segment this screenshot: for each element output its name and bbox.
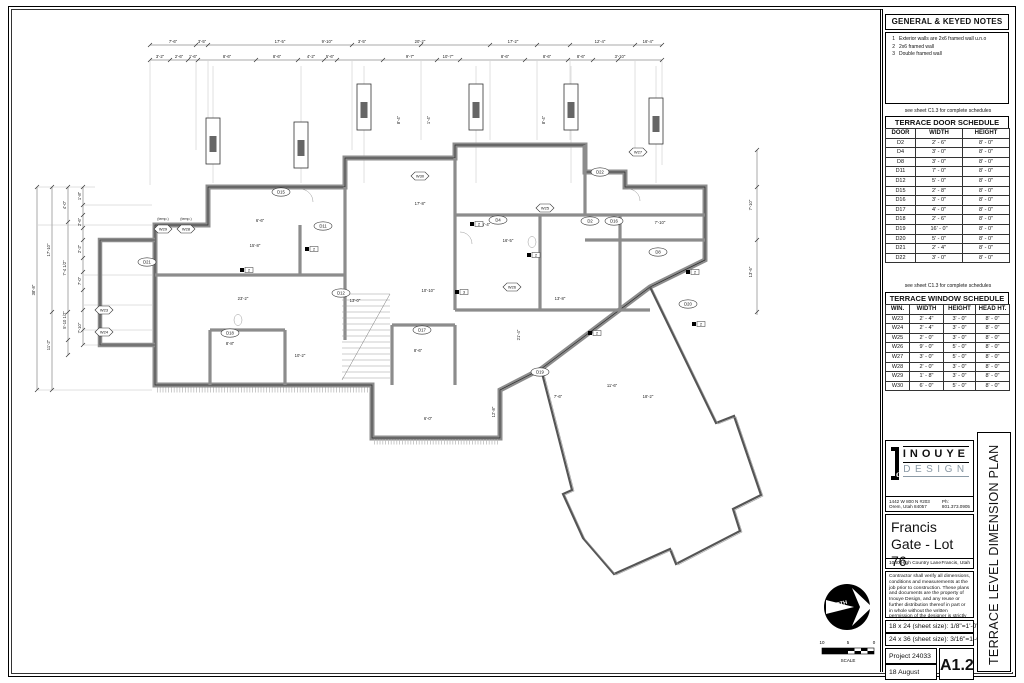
- dimension-label: 11'-6": [607, 383, 618, 388]
- dimension-label: 1'-6": [189, 54, 198, 59]
- door-schedule: TERRACE DOOR SCHEDULE DOOR WIDTH HEIGHT …: [885, 116, 1009, 263]
- table-row: D152' - 8"8' - 0": [886, 186, 1010, 196]
- dimension-label: 5'-6": [326, 54, 335, 59]
- keyed-marker: [692, 322, 696, 326]
- note-item: 3Double framed wall: [889, 51, 1006, 59]
- dimension-label: 21'-4": [516, 329, 521, 340]
- dimension-label: 8'-6": [223, 54, 232, 59]
- door-swings: [234, 189, 640, 326]
- svg-text:d: d: [896, 469, 899, 479]
- dimension-label: 2'-2": [77, 244, 82, 253]
- svg-text:D22: D22: [596, 170, 604, 175]
- svg-text:SCALE: SCALE: [841, 658, 856, 663]
- window-schedule: TERRACE WINDOW SCHEDULE WIN. WIDTH HEIGH…: [885, 292, 1009, 391]
- toilet-fixture: [234, 315, 242, 326]
- general-notes-body: 1Exterior walls are 2x6 framed wall u.n.…: [885, 32, 1009, 104]
- disclaimer-box: Contractor shall verify all dimensions, …: [885, 571, 974, 618]
- dimension-label: 17'-10": [46, 243, 51, 257]
- project-street: 1040 High Country Lane: [889, 561, 941, 566]
- table-row: W242' - 4"3' - 0"8' - 0": [886, 324, 1010, 334]
- svg-text:W24: W24: [100, 330, 109, 335]
- schedule-note-2: see sheet C1.3 for complete schedules: [883, 283, 1013, 289]
- table-row: D174' - 0"8' - 0": [886, 205, 1010, 215]
- table-row: D22' - 6"8' - 0": [886, 138, 1010, 148]
- table-row: D125' - 0"8' - 0": [886, 176, 1010, 186]
- svg-text:5: 5: [847, 640, 850, 645]
- svg-text:D12: D12: [337, 291, 345, 296]
- firm-address: 1442 W 800 N #203 Orem, Utah 84057: [889, 499, 942, 509]
- table-row: D43' - 0"8' - 0": [886, 148, 1010, 158]
- dimension-label: 4'-0": [62, 200, 67, 209]
- svg-text:D16: D16: [610, 219, 618, 224]
- dimension-label: 3'-5": [198, 39, 207, 44]
- dimension-label: 17'-5": [275, 39, 286, 44]
- dimension-label: 8'-6": [273, 54, 282, 59]
- sheet-size-small: 18 x 24 (sheet size): 1/8"=1'-0": [885, 620, 974, 633]
- svg-text:W29: W29: [159, 227, 168, 232]
- note-item: 1Exterior walls are 2x6 framed wall u.n.…: [889, 36, 1006, 44]
- table-row: D182' - 6"8' - 0": [886, 215, 1010, 225]
- dimension-label: 13'-8": [555, 296, 566, 301]
- sheet-title-vertical: TERRACE LEVEL DIMENSION PLAN: [977, 432, 1011, 672]
- dimension-label: 13'-0": [350, 298, 361, 303]
- firm-logo-box: d INOUYE DESIGN 1442 W 800 N #203 Orem, …: [885, 440, 974, 512]
- table-row: D163' - 0"8' - 0": [886, 196, 1010, 206]
- dimension-label: 10'-7": [443, 54, 454, 59]
- dimension-label: 15'-8": [250, 243, 261, 248]
- dimension-label: 7'-6": [169, 39, 178, 44]
- dimension-label: 10'-10": [422, 288, 436, 293]
- svg-text:D4: D4: [495, 218, 501, 223]
- svg-text:D11: D11: [319, 224, 327, 229]
- dimension-label: 17'-8": [415, 201, 426, 206]
- svg-text:D15: D15: [277, 190, 285, 195]
- svg-text:W26: W26: [508, 285, 517, 290]
- title-block: GENERAL & KEYED NOTES 1Exterior walls ar…: [882, 9, 1013, 672]
- dimension-ticks: [35, 43, 759, 392]
- dimension-label: 12'-4": [595, 39, 606, 44]
- dimension-label: 18'-2": [643, 394, 654, 399]
- dimension-label: 8'-4": [396, 115, 401, 124]
- north-arrow: NORTH: [824, 584, 872, 630]
- dimension-label: 6'-6": [256, 218, 265, 223]
- table-row: W232' - 4"3' - 0"8' - 0": [886, 314, 1010, 324]
- dimension-lines: [37, 45, 757, 390]
- firm-name-2: DESIGN: [903, 463, 969, 477]
- dimension-label: 23'-2": [238, 296, 249, 301]
- project-city: Francis, Utah: [941, 561, 970, 566]
- svg-text:D20: D20: [684, 302, 692, 307]
- dimension-label: (temp.): [157, 217, 168, 221]
- keyed-marker: [305, 247, 309, 251]
- dimension-label: 3'-5": [358, 39, 367, 44]
- drawing-sheet: { "title_block": { "notes": { "title": "…: [0, 0, 1024, 683]
- table-row: W306' - 0"5' - 0"8' - 0": [886, 381, 1010, 391]
- dimension-label: 5'-10 1/2": [62, 311, 67, 329]
- dimension-label: 4'-2": [307, 54, 316, 59]
- table-row: D212' - 4"8' - 0": [886, 244, 1010, 254]
- toilet-fixture: [528, 237, 536, 248]
- general-notes-list: 1Exterior walls are 2x6 framed wall u.n.…: [886, 33, 1008, 59]
- table-row: D83' - 0"8' - 0": [886, 157, 1010, 167]
- scale-bar: 10 5 0 SCALE: [819, 640, 875, 663]
- svg-text:W27: W27: [634, 150, 643, 155]
- sheet-number: A1.2: [939, 648, 974, 680]
- floor-plan-drawing: 7'-6"3'-5"17'-5"9'-10"3'-5"20'-2"17'-2"1…: [0, 0, 880, 683]
- general-notes-header: GENERAL & KEYED NOTES: [885, 14, 1009, 30]
- svg-text:D19: D19: [536, 370, 544, 375]
- dimension-label: 8'-4": [541, 115, 546, 124]
- door-schedule-table: DOOR WIDTH HEIGHT D22' - 6"8' - 0"D43' -…: [885, 128, 1010, 263]
- table-row: W273' - 0"5' - 0"8' - 0": [886, 352, 1010, 362]
- dimension-label: 8'-6": [414, 348, 423, 353]
- staircase-diagonal: [342, 294, 390, 380]
- firm-name: INOUYE: [903, 446, 969, 463]
- keyed-marker: [588, 331, 592, 335]
- door-window-tags: D15D11D12D18D17D4D2D16D8D19D21D22D20W29W…: [95, 148, 697, 376]
- dimension-label: 8'-8": [226, 341, 235, 346]
- dimension-label: 3'-2": [156, 54, 165, 59]
- dimension-label: 9'-7": [406, 54, 415, 59]
- dimension-label: 8'-6": [543, 54, 552, 59]
- note-item: 22x6 framed wall: [889, 44, 1006, 52]
- dimension-label: 7'-4 1/2": [62, 260, 67, 276]
- svg-text:10: 10: [819, 640, 825, 645]
- door-col-header: DOOR: [886, 129, 916, 139]
- dimension-label: 2'-6": [77, 217, 82, 226]
- table-row: D223' - 0"8' - 0": [886, 253, 1010, 263]
- svg-text:D2: D2: [587, 219, 593, 224]
- headht-col-header: HEAD HT.: [976, 305, 1010, 315]
- dimension-label: (temp.): [180, 217, 191, 221]
- svg-text:W25: W25: [541, 206, 550, 211]
- table-row: D117' - 0"8' - 0": [886, 167, 1010, 177]
- width-col-header: WIDTH: [910, 305, 944, 315]
- dimension-label: 9'-10": [322, 39, 333, 44]
- dimension-label: 1'-4": [426, 115, 431, 124]
- dimension-label: 16'-5": [503, 238, 514, 243]
- table-row: W252' - 0"3' - 0"8' - 0": [886, 333, 1010, 343]
- svg-text:D18: D18: [226, 331, 234, 336]
- dimension-label: 2'-6": [175, 54, 184, 59]
- door-schedule-title: TERRACE DOOR SCHEDULE: [885, 116, 1009, 128]
- dimension-label: 17'-2": [508, 39, 519, 44]
- height-col-header: HEIGHT: [963, 129, 1010, 139]
- general-notes-title: GENERAL & KEYED NOTES: [886, 15, 1008, 29]
- table-row: D1916' - 0"8' - 0": [886, 224, 1010, 234]
- win-col-header: WIN.: [886, 305, 910, 315]
- keyed-marker: [455, 290, 459, 294]
- dimension-label: 7'-10": [748, 199, 753, 210]
- svg-text:W28: W28: [182, 227, 191, 232]
- table-row: W282' - 0"3' - 0"8' - 0": [886, 362, 1010, 372]
- dimension-label: 8'-6": [501, 54, 510, 59]
- dimension-label: 7'-6": [554, 394, 563, 399]
- keyed-marker: [240, 268, 244, 272]
- project-box: Francis Gate - Lot 76 1040 High Country …: [885, 514, 974, 569]
- table-row: W269' - 0"5' - 0"8' - 0": [886, 343, 1010, 353]
- dimension-label: 16'-4": [643, 39, 654, 44]
- dimension-label: 12'-8": [491, 406, 496, 417]
- sheet-size-large: 24 x 36 (sheet size): 3/16"=1'-0": [885, 633, 974, 646]
- dimension-label: 6'-0": [424, 416, 433, 421]
- dimension-label: 20'-2": [415, 39, 426, 44]
- keyed-marker: [470, 222, 474, 226]
- structural-columns: [206, 84, 663, 168]
- svg-text:0: 0: [873, 640, 876, 645]
- title-block-double-line: [880, 9, 881, 672]
- schedule-note: see sheet C1.3 for complete schedules: [883, 108, 1013, 114]
- svg-text:D17: D17: [418, 328, 426, 333]
- svg-text:W23: W23: [100, 308, 109, 313]
- inouye-logo-icon: d: [890, 446, 899, 484]
- svg-text:D8: D8: [655, 250, 661, 255]
- terrace-wing-walls: [541, 287, 763, 575]
- window-schedule-title: TERRACE WINDOW SCHEDULE: [885, 292, 1009, 304]
- sheet-date: 18 August 2025: [885, 664, 937, 680]
- width-col-header: WIDTH: [916, 129, 963, 139]
- firm-phone: Ph: 801.373.0905: [942, 499, 970, 509]
- svg-text:W30: W30: [416, 174, 425, 179]
- project-number: Project 24033: [885, 648, 937, 664]
- dimension-label: 1'-8": [77, 191, 82, 200]
- dimension-label: 3'-10": [615, 54, 626, 59]
- height-col-header: HEIGHT: [944, 305, 976, 315]
- dimension-label: 7'-10": [77, 322, 82, 333]
- dimension-label: 13'-6": [748, 266, 753, 277]
- dimension-label: 38'-8": [31, 284, 36, 295]
- exterior-walls: [100, 145, 705, 442]
- dimension-label: 10'-2": [295, 353, 306, 358]
- dimension-label: 7'-10": [655, 220, 666, 225]
- window-schedule-table: WIN. WIDTH HEIGHT HEAD HT. W232' - 4"3' …: [885, 304, 1010, 391]
- svg-text:D21: D21: [143, 260, 151, 265]
- dimension-label: 11'-2": [46, 339, 51, 350]
- dimension-label: 7'-0": [77, 276, 82, 285]
- table-row: D205' - 0"8' - 0": [886, 234, 1010, 244]
- keyed-marker: [686, 270, 690, 274]
- table-row: W291' - 8"3' - 0"8' - 0": [886, 372, 1010, 382]
- dimension-label: 8'-6": [577, 54, 586, 59]
- keyed-marker: [527, 253, 531, 257]
